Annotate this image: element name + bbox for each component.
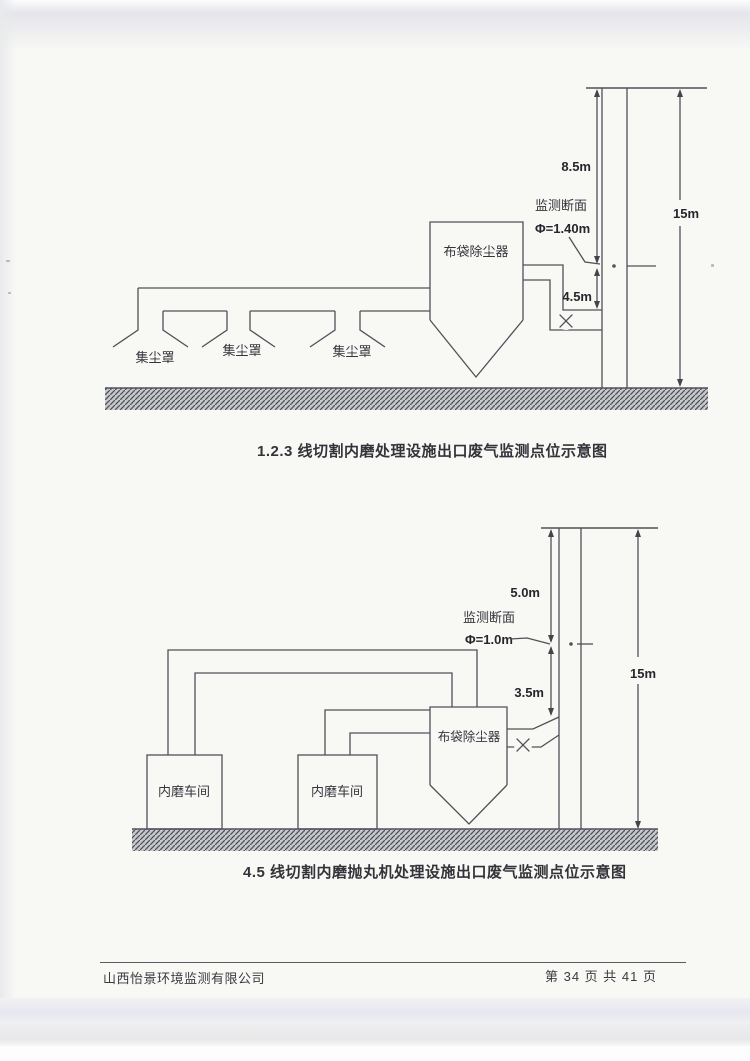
hood2-label: 集尘罩 — [222, 343, 261, 358]
dimension-upper: 8.5m — [561, 89, 600, 264]
dim-4-5m-label: 4.5m — [562, 289, 592, 304]
monitor-diameter-label: Φ=1.0m — [465, 632, 513, 647]
dim-5-0m-label: 5.0m — [510, 585, 540, 600]
diagram1-caption: 1.2.3 线切割内磨处理设施出口废气监测点位示意图 — [257, 440, 608, 461]
workshop2-label: 内磨车间 — [311, 784, 363, 799]
fan-icon — [557, 312, 575, 330]
bag-filter-label: 布袋除尘器 — [438, 729, 501, 744]
monitor-section-callout: 监测断面 Φ=1.0m — [463, 610, 550, 647]
footer-company: 山西怡景环境监测有限公司 — [103, 968, 265, 987]
monitor-diameter-label: Φ=1.40m — [535, 221, 590, 236]
monitor-port-icon — [609, 261, 656, 271]
workshop1-label: 内磨车间 — [158, 784, 210, 799]
scan-artifact-top-band — [0, 0, 750, 48]
bag-filter-label: 布袋除尘器 — [443, 244, 508, 259]
hood3-label: 集尘罩 — [332, 344, 371, 359]
ground-hatch — [132, 829, 658, 851]
monitor-section-callout: 监测断面 Φ=1.40m — [535, 198, 600, 264]
dimension-lower: 3.5m — [514, 646, 554, 716]
scanned-page: 布袋除尘器 集尘罩 集尘罩 集尘罩 — [0, 0, 750, 1061]
dim-15m-label: 15m — [630, 666, 656, 681]
fan-icon — [514, 736, 532, 754]
scan-artifact-left-edge — [0, 0, 16, 1061]
inlet-duct — [138, 288, 430, 311]
scan-speck — [8, 292, 11, 294]
ground-hatch — [105, 388, 708, 410]
scan-artifact-bottom-band-1 — [0, 998, 750, 1022]
dimension-total: 15m — [630, 529, 656, 829]
dim-3-5m-label: 3.5m — [514, 685, 544, 700]
dimension-upper: 5.0m — [510, 529, 554, 643]
diagram1-schematic: 布袋除尘器 集尘罩 集尘罩 集尘罩 — [95, 80, 715, 415]
dim-15m-label: 15m — [673, 206, 699, 221]
diagram2-caption: 4.5 线切割内磨抛丸机处理设施出口废气监测点位示意图 — [243, 861, 627, 882]
scan-artifact-bottom-band-2 — [0, 1022, 750, 1046]
exhaust-stack — [586, 88, 707, 388]
dim-8-5m-label: 8.5m — [561, 159, 591, 174]
dust-hoods: 集尘罩 集尘罩 集尘罩 — [113, 288, 385, 365]
dimension-total: 15m — [673, 89, 699, 387]
scan-speck — [6, 260, 10, 262]
diagram2-schematic: 内磨车间 内磨车间 布袋除尘器 — [125, 515, 670, 860]
workshop-2: 内磨车间 — [298, 755, 377, 829]
monitor-section-label: 监测断面 — [535, 198, 587, 213]
scan-artifact-bottom-band-3 — [0, 1046, 750, 1061]
monitor-port-icon — [566, 639, 593, 649]
workshop-1: 内磨车间 — [147, 755, 222, 829]
dimension-lower: 4.5m — [562, 268, 600, 309]
bag-filter: 布袋除尘器 — [430, 707, 507, 824]
hood1-label: 集尘罩 — [135, 350, 174, 365]
bag-filter: 布袋除尘器 — [430, 222, 523, 377]
footer-page-number: 第 34 页 共 41 页 — [545, 966, 657, 985]
footer-rule — [100, 962, 686, 963]
monitor-section-label: 监测断面 — [463, 610, 515, 625]
